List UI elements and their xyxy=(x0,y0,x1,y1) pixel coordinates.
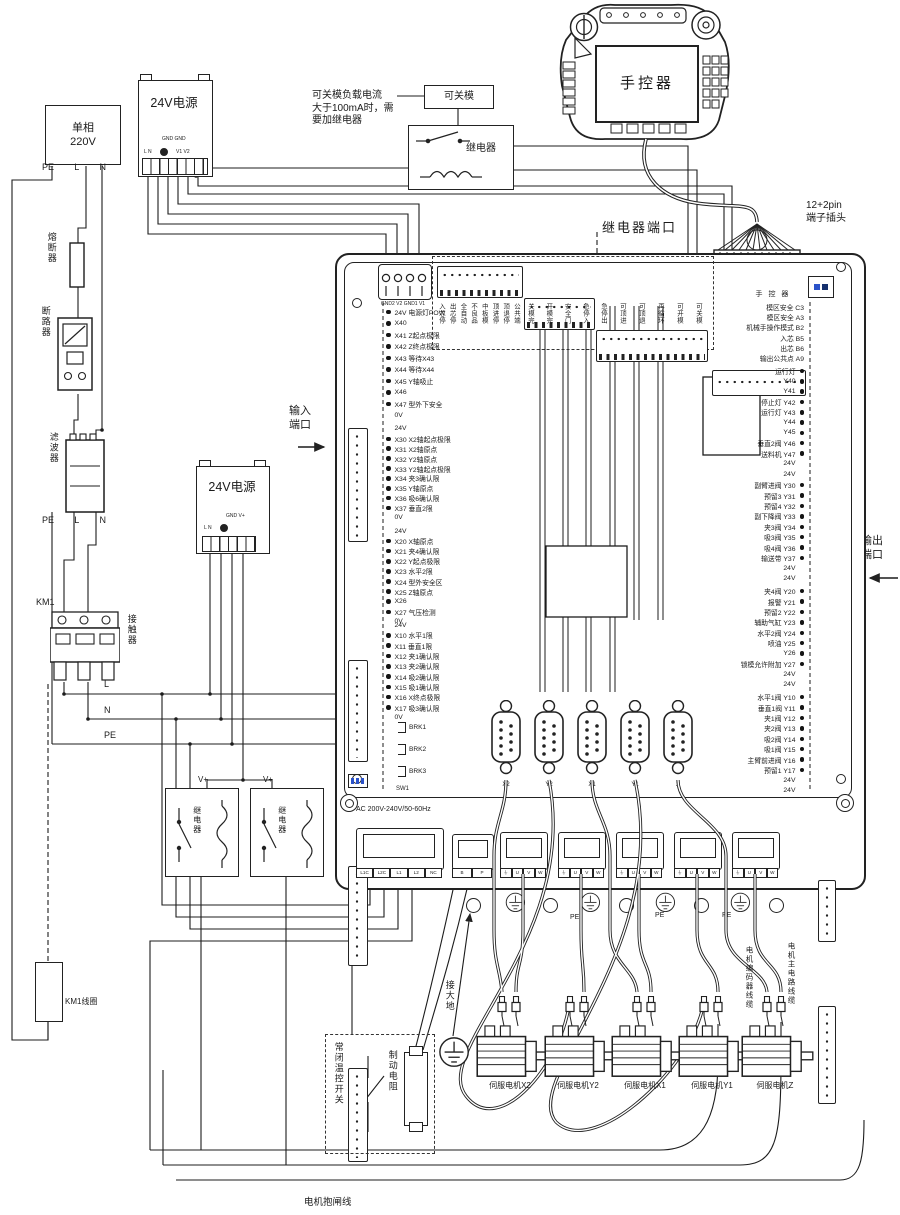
encoder-plug xyxy=(632,996,642,1016)
servo-motor-z xyxy=(740,1024,816,1082)
thermal-switch-label: 常闭温控开关 xyxy=(333,1042,344,1105)
power-plug xyxy=(579,996,589,1016)
power-plug xyxy=(646,996,656,1016)
brake-line-label: 电机抱闸线 xyxy=(304,1194,352,1208)
servo-motor-y2 xyxy=(543,1024,619,1082)
motor-label: 伺服电机X1 xyxy=(611,1082,679,1091)
power-plug xyxy=(713,996,723,1016)
brake-resistor-label: 制动电阻 xyxy=(387,1050,398,1092)
wiring-diagram: 单相 220V PELN 熔断器 断路器 滤波器 PELN KM1 接触器 LN… xyxy=(0,0,900,1215)
brake-resistor-body xyxy=(404,1052,428,1126)
motor-label: 伺服电机Y2 xyxy=(544,1082,612,1091)
encoder-plug xyxy=(497,996,507,1016)
servo-motor-x2 xyxy=(475,1024,551,1082)
encoder-plug xyxy=(565,996,575,1016)
earth-label: 接大地 xyxy=(444,980,455,1012)
encoder-cable-label: 电机编码器线缆 xyxy=(744,946,755,1009)
brake-resistor-cap xyxy=(409,1046,423,1056)
earth-symbol xyxy=(438,1036,472,1070)
motor-label: 伺服电机Z xyxy=(741,1082,809,1091)
motor-label: 伺服电机X2 xyxy=(476,1082,544,1091)
power-plug xyxy=(776,996,786,1016)
brake-resistor-cap xyxy=(409,1122,423,1132)
power-cable-label: 电机主电路线缆 xyxy=(786,942,797,1005)
motor-label: 伺服电机Y1 xyxy=(678,1082,746,1091)
servo-motor-x1 xyxy=(610,1024,686,1082)
encoder-plug xyxy=(699,996,709,1016)
encoder-plug xyxy=(762,996,772,1016)
power-plug xyxy=(511,996,521,1016)
